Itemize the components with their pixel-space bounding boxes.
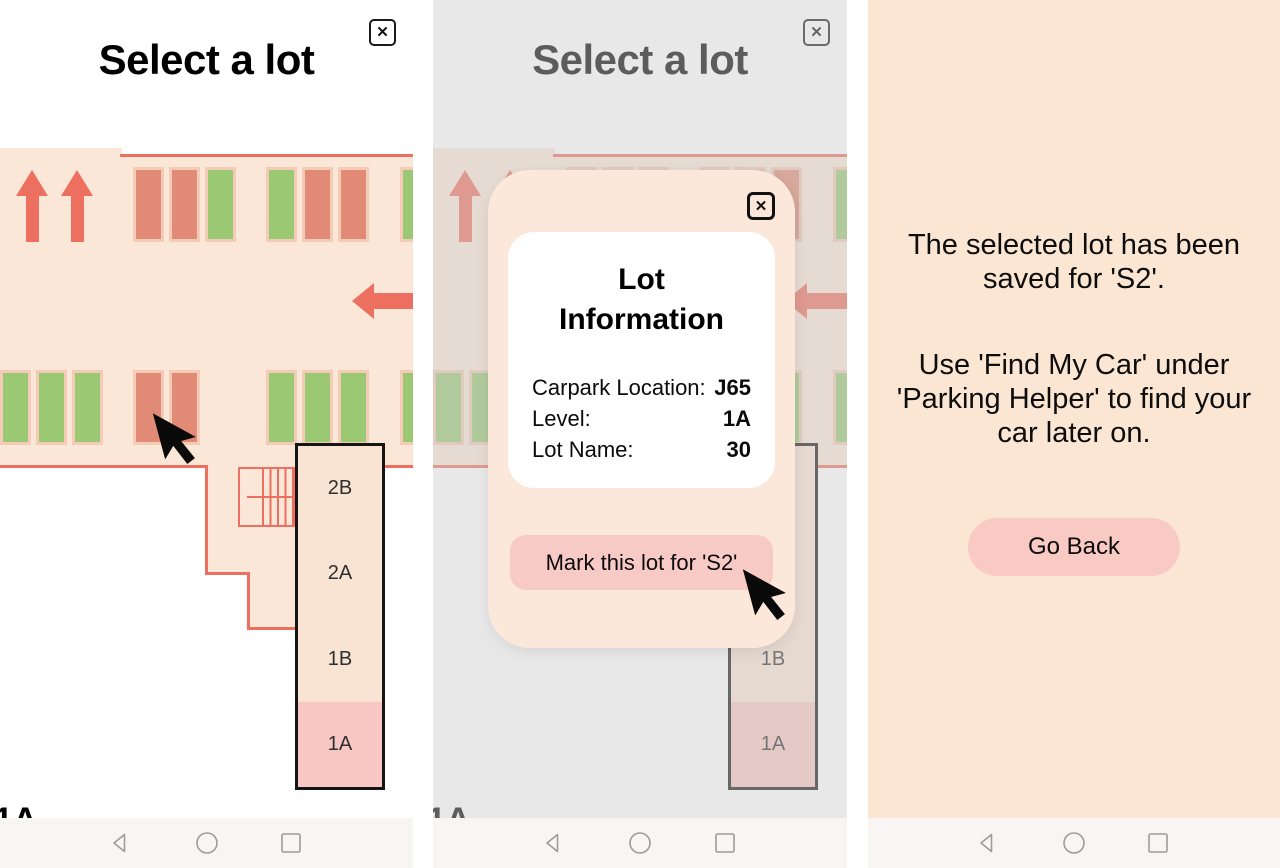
parking-spot-free[interactable] [338,370,369,445]
saved-message: The selected lot has been saved for 'S2'… [896,228,1252,296]
nav-home-icon[interactable] [194,830,220,856]
nav-back-icon[interactable] [974,830,1000,856]
close-icon: ✕ [376,25,389,40]
parking-spot-free[interactable] [72,370,103,445]
select-lot-screen-dimmed: Select a lot ✕ 2B 2A 1B [433,0,847,868]
lot-info-rows: Carpark Location: J65 Level: 1A Lot Name… [532,372,751,465]
nav-recents-icon[interactable] [712,830,738,856]
android-navbar [0,818,413,868]
parking-spot-free[interactable] [266,167,297,242]
parking-spot-free[interactable] [36,370,67,445]
parking-row [400,167,413,242]
mark-lot-button[interactable]: Mark this lot for 'S2' [510,535,773,590]
android-navbar [868,818,1280,868]
nav-home-icon[interactable] [627,830,653,856]
level-option-1b[interactable]: 1B [298,617,382,702]
modal-title: Lot Information [537,260,747,340]
parking-spot-free[interactable] [302,370,333,445]
map-building-outline [247,572,298,630]
nav-recents-icon[interactable] [278,830,304,856]
info-row-carpark-location: Carpark Location: J65 [532,372,751,403]
level-selector: 2B 2A 1B 1A [295,443,385,790]
parking-spot-occupied[interactable] [133,167,164,242]
up-arrow-icon [61,170,93,242]
carpark-map: 2B 2A 1B 1A [0,148,413,828]
parking-row [400,370,413,445]
level-option-1a-selected[interactable]: 1A [298,702,382,787]
nav-back-icon[interactable] [540,830,566,856]
parking-spot-free[interactable] [400,167,413,242]
parking-spot-free[interactable] [266,370,297,445]
parking-row [266,167,369,242]
left-arrow-icon [352,283,413,319]
modal-close-button[interactable]: ✕ [747,192,775,220]
nav-home-icon[interactable] [1061,830,1087,856]
screen-lot-saved-confirmation: The selected lot has been saved for 'S2'… [868,0,1280,868]
go-back-button[interactable]: Go Back [968,518,1180,576]
page-title: Select a lot [0,36,413,84]
parking-spot-occupied[interactable] [302,167,333,242]
info-row-lot-name: Lot Name: 30 [532,434,751,465]
parking-spot-occupied[interactable] [169,167,200,242]
screen-select-a-lot: Select a lot ✕ 2B 2A 1B [0,0,413,868]
parking-spot-free[interactable] [205,167,236,242]
select-lot-screen: Select a lot ✕ 2B 2A 1B [0,0,413,868]
android-navbar [433,818,847,868]
staircase-icon [238,467,295,527]
parking-spot-occupied[interactable] [338,167,369,242]
info-row-level: Level: 1A [532,403,751,434]
parking-spot-free[interactable] [0,370,31,445]
screen-lot-information: Select a lot ✕ 2B 2A 1B [433,0,847,868]
parking-row [133,167,236,242]
lot-information-card: Lot Information Carpark Location: J65 Le… [508,232,775,488]
parking-spot-free[interactable] [400,370,413,445]
nav-recents-icon[interactable] [1145,830,1171,856]
level-option-2b[interactable]: 2B [298,446,382,531]
up-arrow-icon [16,170,48,242]
parking-row [266,370,369,445]
find-my-car-hint: Use 'Find My Car' under 'Parking Helper'… [896,348,1252,450]
close-icon: ✕ [755,197,768,215]
close-button[interactable]: ✕ [369,19,396,46]
nav-back-icon[interactable] [107,830,133,856]
parking-row [0,370,103,445]
level-option-2a[interactable]: 2A [298,531,382,616]
